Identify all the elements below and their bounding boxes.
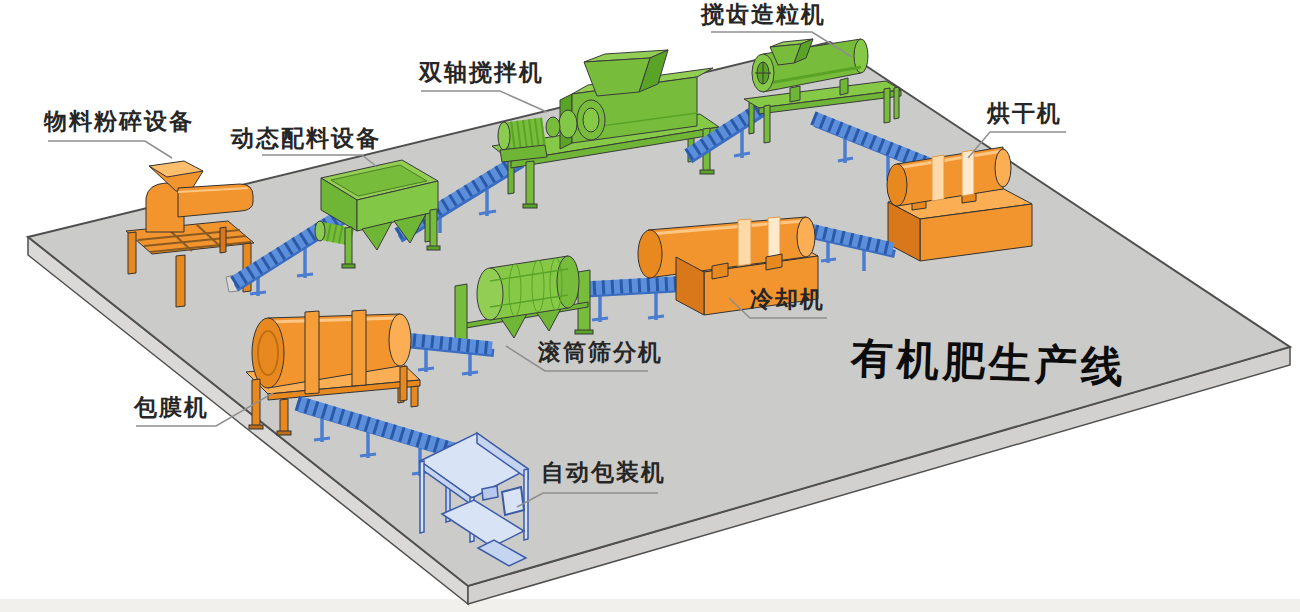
fertilizer-production-line-diagram: 物料粉碎设备 动态配料设备 双轴搅拌机 搅齿造粒机 烘干机 冷却机 滚筒筛分机 … — [0, 0, 1300, 612]
label-granulator: 搅齿造粒机 — [701, 2, 826, 27]
label-batcher: 动态配料设备 — [231, 126, 381, 151]
label-mixer: 双轴搅拌机 — [419, 60, 544, 85]
diagram-title: 有机肥生产线 — [850, 330, 1128, 396]
mixer-motor — [498, 122, 547, 162]
scene-svg — [0, 0, 1300, 612]
label-dryer: 烘干机 — [987, 101, 1062, 126]
dryer-machine — [887, 147, 1032, 261]
bottom-strip — [0, 599, 1300, 612]
leader-crusher — [48, 141, 172, 158]
label-cooler: 冷却机 — [750, 287, 825, 312]
leader-mixer — [421, 91, 547, 112]
label-packer: 自动包装机 — [541, 460, 666, 485]
label-crusher: 物料粉碎设备 — [44, 109, 194, 134]
label-coater: 包膜机 — [134, 395, 209, 420]
label-screener: 滚筒筛分机 — [538, 340, 663, 365]
